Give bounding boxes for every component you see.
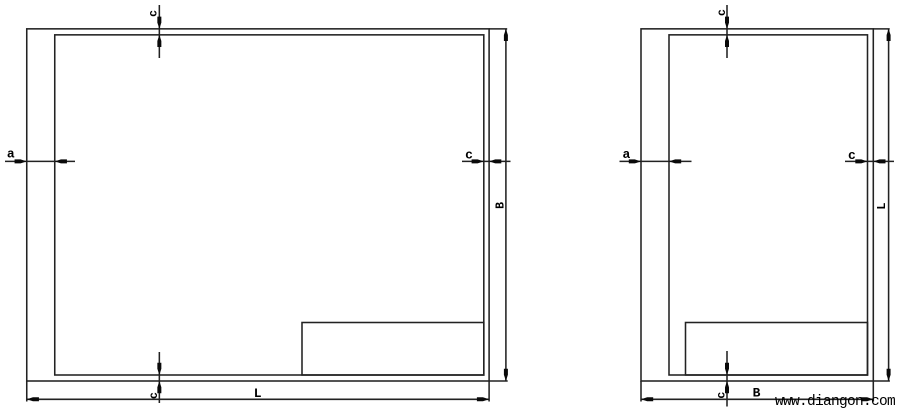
svg-text:B: B bbox=[494, 202, 507, 209]
svg-text:B: B bbox=[753, 385, 761, 400]
svg-text:L: L bbox=[254, 386, 262, 401]
svg-text:a: a bbox=[7, 147, 15, 162]
svg-text:c: c bbox=[148, 392, 161, 399]
svg-text:c: c bbox=[848, 148, 856, 163]
svg-text:L: L bbox=[875, 203, 889, 210]
svg-text:c: c bbox=[716, 392, 729, 399]
svg-text:www.diangon.com: www.diangon.com bbox=[775, 394, 895, 410]
svg-text:c: c bbox=[465, 148, 473, 163]
svg-text:c: c bbox=[716, 9, 729, 16]
svg-text:c: c bbox=[147, 10, 160, 17]
svg-text:a: a bbox=[622, 147, 630, 162]
